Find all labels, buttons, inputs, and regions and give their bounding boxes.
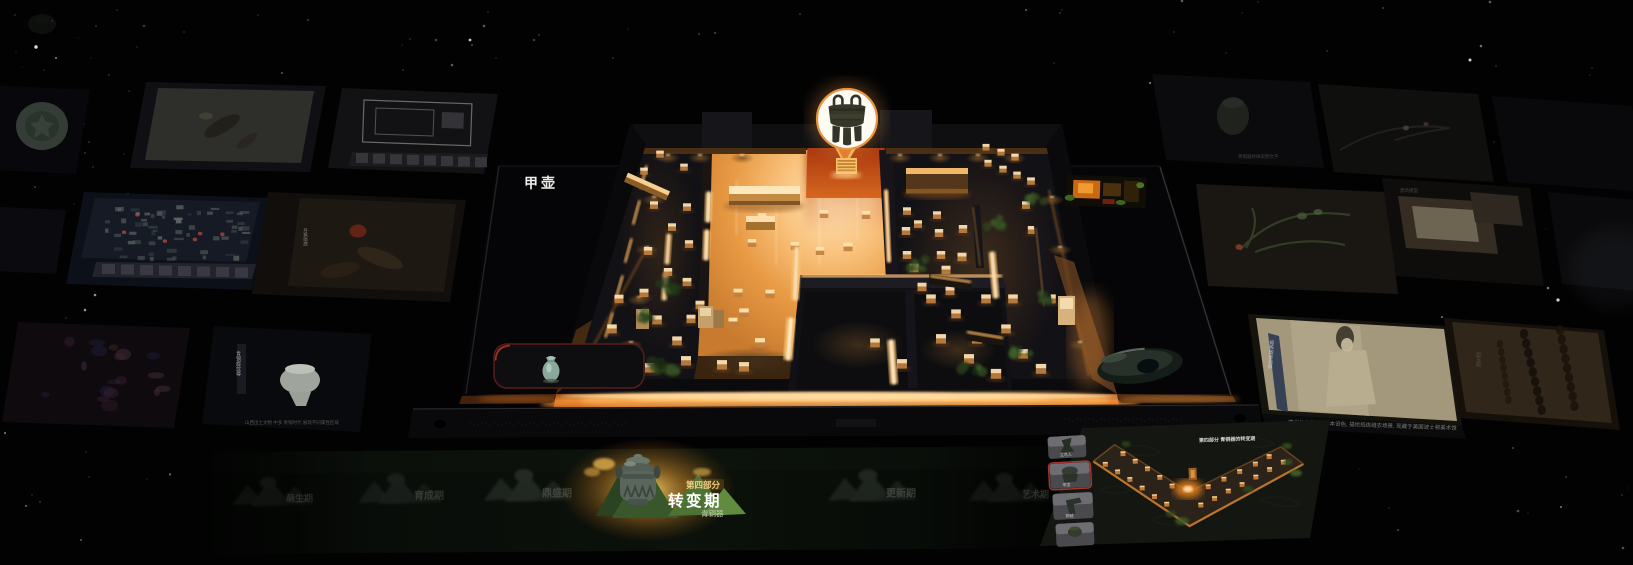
svg-text:萌生期: 萌生期 [286,493,313,504]
svg-text:丹枫呦鹿: 丹枫呦鹿 [303,228,309,248]
svg-text:立鸟人: 立鸟人 [1060,451,1072,458]
svg-text:育成期: 育成期 [414,489,444,502]
svg-text:青铜器纹样说明文字: 青铜器纹样说明文字 [1238,153,1279,160]
svg-text:甲壶: 甲壶 [1062,481,1070,487]
svg-text:艺术期: 艺术期 [1022,489,1049,500]
svg-text:组玉佩: 组玉佩 [1475,351,1481,368]
svg-text:青铜旋纹尊: 青铜旋纹尊 [235,350,241,377]
svg-text:青铜器: 青铜器 [701,508,724,518]
svg-text:甲壶: 甲壶 [524,175,558,191]
svg-text:铜钺: 铜钺 [1065,512,1073,518]
svg-text:转变期: 转变期 [668,491,722,510]
svg-text:第四部分: 第四部分 [686,480,721,490]
svg-text:建筑模型: 建筑模型 [1400,187,1418,194]
svg-text:更新期: 更新期 [886,487,916,500]
svg-text:山西出土文物 中多 青铜时代 展现不同属性区域: 山西出土文物 中多 青铜时代 展现不同属性区域 [245,419,339,426]
